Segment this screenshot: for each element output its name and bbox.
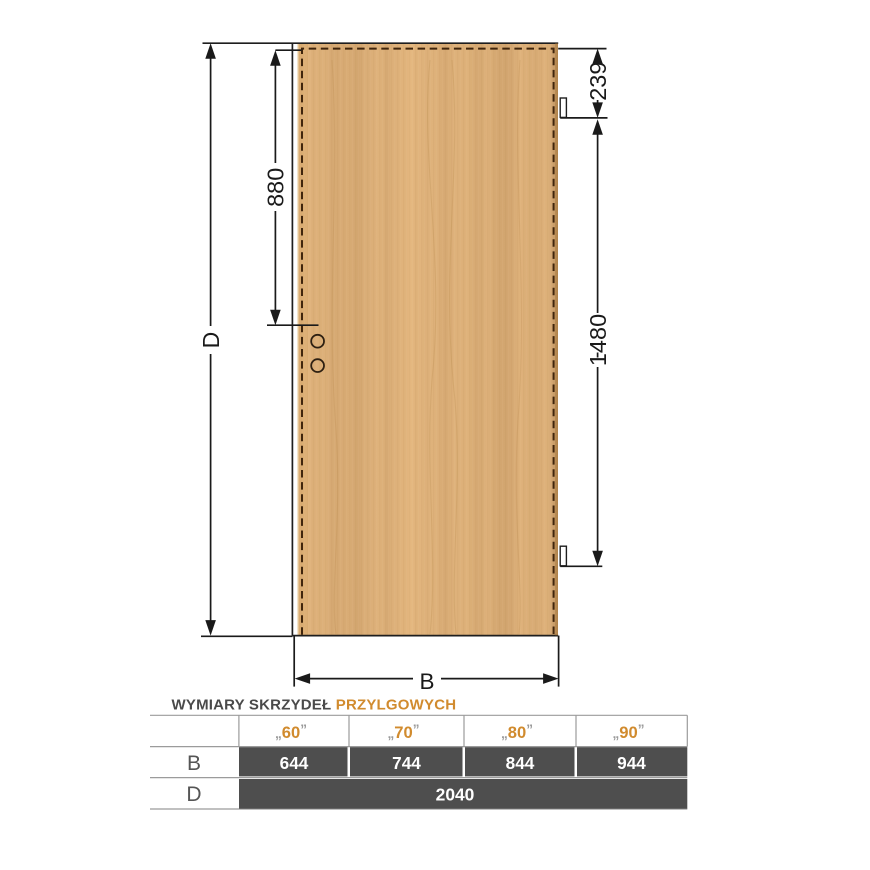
svg-text:B: B <box>187 752 201 775</box>
svg-text:„60”: „60” <box>275 722 307 742</box>
svg-text:744: 744 <box>392 753 421 773</box>
svg-text:2040: 2040 <box>436 784 475 804</box>
svg-text:D: D <box>198 332 224 349</box>
svg-text:B: B <box>419 669 434 694</box>
svg-text:239: 239 <box>585 62 611 101</box>
svg-text:644: 644 <box>280 753 309 773</box>
svg-text:1480: 1480 <box>585 314 611 366</box>
svg-text:880: 880 <box>263 168 289 207</box>
svg-text:844: 844 <box>506 753 535 773</box>
svg-text:„90”: „90” <box>613 722 645 742</box>
svg-text:944: 944 <box>617 753 646 773</box>
svg-text:„80”: „80” <box>501 722 533 742</box>
svg-text:WYMIARY SKRZYDEŁ PRZYLGOWYCH: WYMIARY SKRZYDEŁ PRZYLGOWYCH <box>172 697 457 714</box>
svg-text:D: D <box>186 783 201 806</box>
svg-text:„70”: „70” <box>388 722 420 742</box>
